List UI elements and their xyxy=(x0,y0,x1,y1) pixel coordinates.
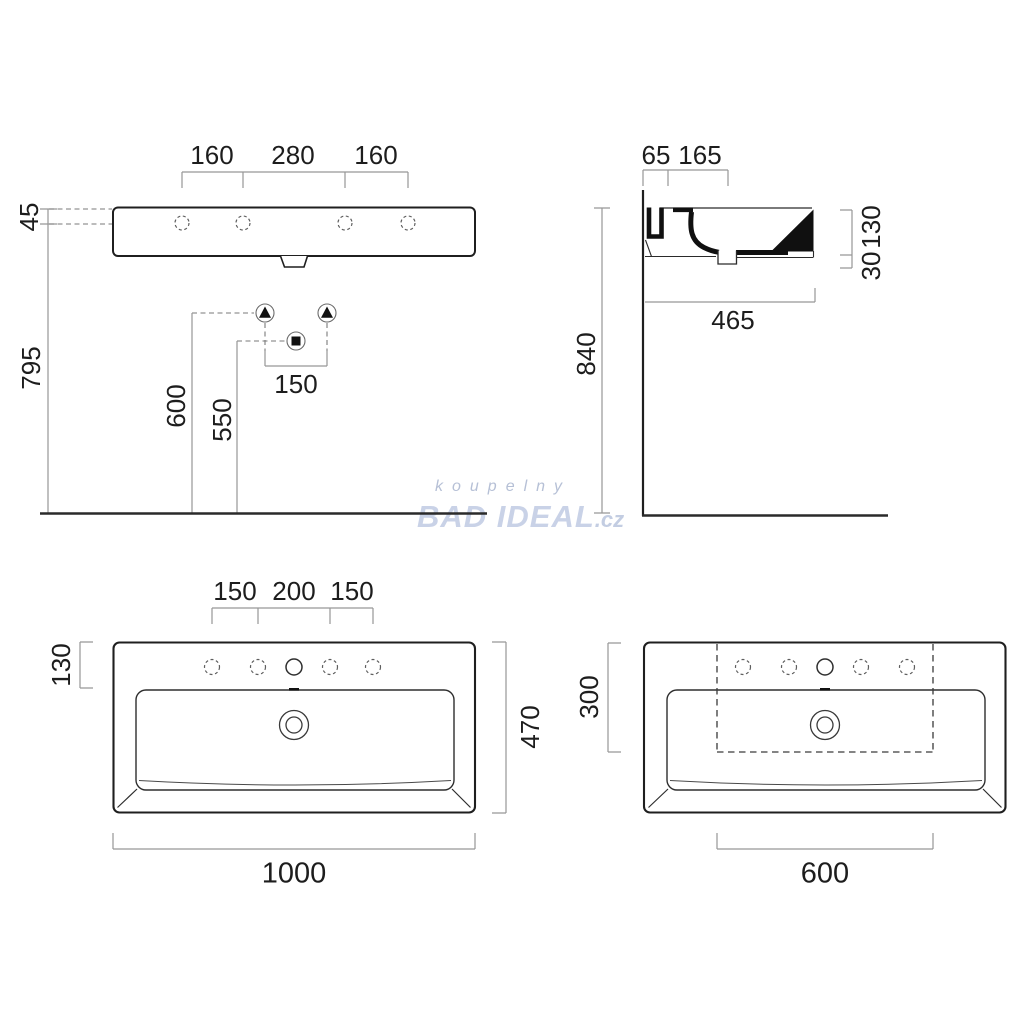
dim-side-depth: 465 xyxy=(711,307,754,333)
dim-cabinet-depth: 300 xyxy=(576,675,602,718)
dim-front-pitch-right: 160 xyxy=(354,142,397,168)
dim-plan-back-ledge: 130 xyxy=(48,643,74,686)
drawing-linework xyxy=(0,0,1024,1024)
section-drain-spigot xyxy=(718,251,737,265)
dim-plan-pitch-center: 200 xyxy=(272,578,315,604)
plan-width-dimension xyxy=(113,833,475,849)
sink-plan-outline xyxy=(644,643,1006,813)
dim-plan-width: 1000 xyxy=(262,860,327,889)
section-back-channel xyxy=(649,208,662,237)
side-top-dimension-bracket xyxy=(643,170,728,186)
plan-top-dimension-bracket xyxy=(212,608,373,624)
dim-side-rim-height: 840 xyxy=(573,332,599,375)
cabinet-plan-view xyxy=(608,643,1006,850)
dim-plan-pitch-left: 150 xyxy=(213,578,256,604)
sink-front-outline xyxy=(113,208,475,257)
side-view xyxy=(594,170,888,516)
front-view xyxy=(40,172,487,514)
dim-side-drain-drop: 30 xyxy=(858,252,884,281)
dim-front-mount-height: 795 xyxy=(18,346,44,389)
section-basin-curve xyxy=(691,212,719,252)
front-top-dimension-bracket xyxy=(182,172,408,188)
drain-trap-outline xyxy=(281,256,308,267)
dim-front-drain-height: 550 xyxy=(209,398,235,441)
drain-square-icon xyxy=(292,337,301,346)
dim-front-bracket-pitch: 150 xyxy=(274,371,317,397)
dim-side-hole-to-back: 165 xyxy=(678,142,721,168)
sink-cross-section xyxy=(645,208,814,265)
dim-front-top-to-hole: 45 xyxy=(16,203,42,232)
technical-drawing-sheet: koupelny BAD IDEAL.cz xyxy=(0,0,1024,1024)
dim-front-pitch-center: 280 xyxy=(271,142,314,168)
dim-front-bracket-height: 600 xyxy=(163,384,189,427)
dim-plan-pitch-right: 150 xyxy=(330,578,373,604)
cabinet-width-dimension xyxy=(717,833,933,849)
sink-plan-outline xyxy=(114,643,476,813)
dim-side-edge-to-hole: 65 xyxy=(642,142,671,168)
side-right-dimension-bracket xyxy=(840,210,852,268)
plan-view xyxy=(80,608,506,849)
front-bracket-pitch-dimension xyxy=(265,351,327,366)
overflow-slot xyxy=(289,688,299,691)
plan-depth-dimension xyxy=(492,642,506,813)
dim-side-body-height: 130 xyxy=(858,205,884,248)
section-front-apron xyxy=(771,210,814,252)
plan-ledge-dimension xyxy=(80,642,93,688)
cabinet-depth-dimension xyxy=(608,643,621,752)
side-depth-dimension xyxy=(645,288,815,302)
dim-plan-depth: 470 xyxy=(517,705,543,748)
dim-front-pitch-left: 160 xyxy=(190,142,233,168)
wall-bracket-symbols xyxy=(256,304,336,350)
overflow-slot xyxy=(820,688,830,691)
dim-cabinet-width: 600 xyxy=(801,860,849,889)
